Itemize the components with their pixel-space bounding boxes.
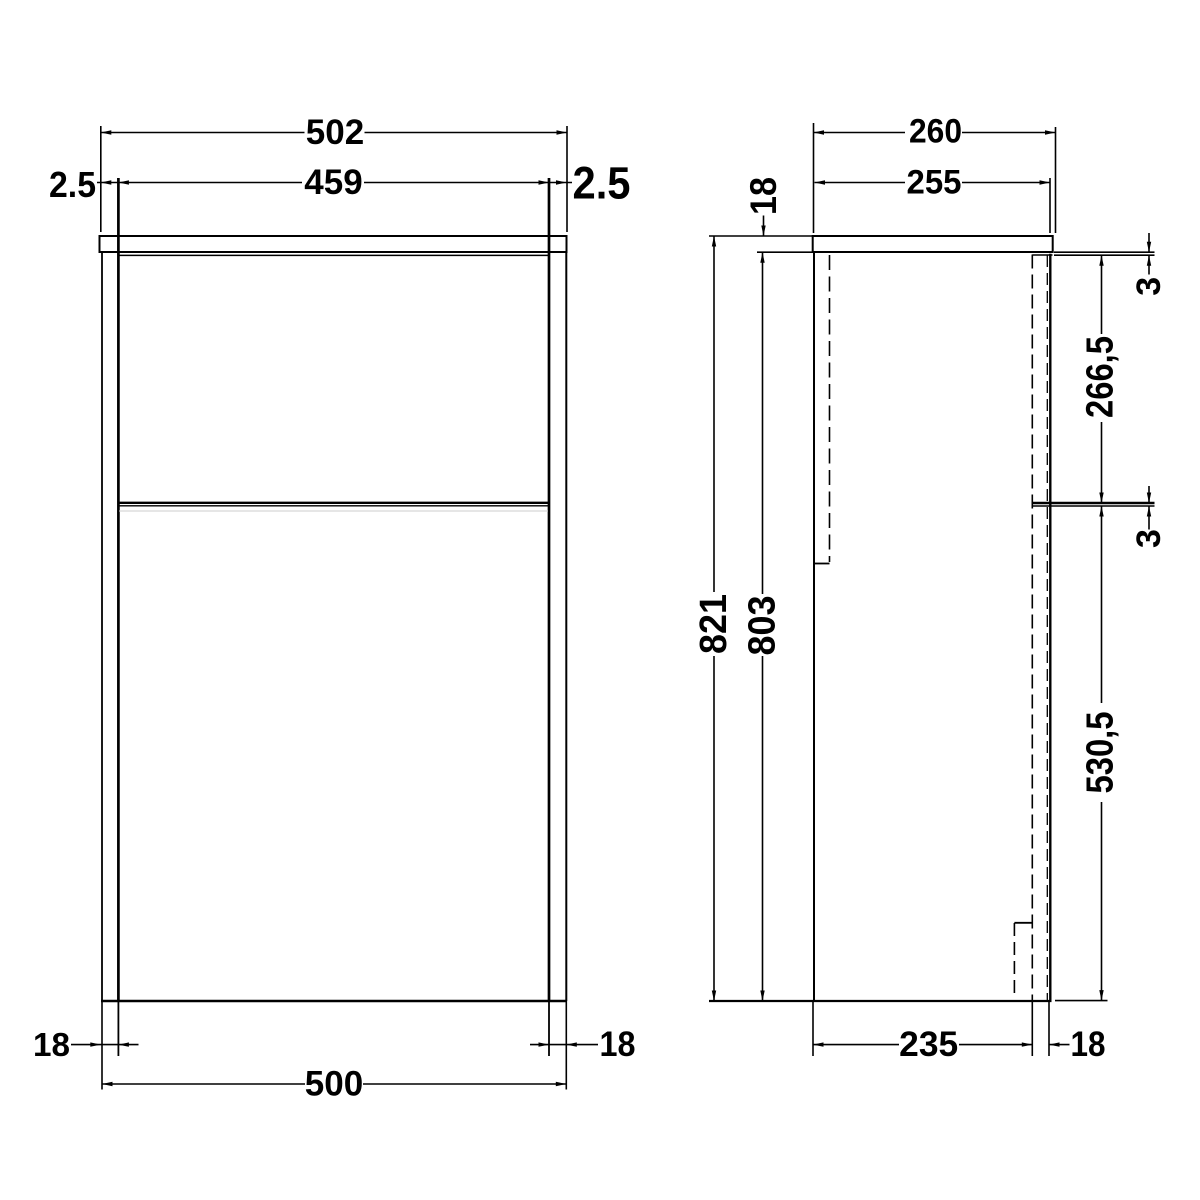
svg-text:266,5: 266,5 (1080, 336, 1122, 418)
svg-text:18: 18 (600, 1025, 636, 1064)
svg-text:500: 500 (305, 1065, 363, 1104)
svg-text:459: 459 (304, 163, 362, 202)
svg-text:260: 260 (909, 113, 962, 151)
svg-text:18: 18 (743, 177, 784, 215)
svg-text:3: 3 (1130, 277, 1168, 296)
svg-text:18: 18 (33, 1026, 70, 1063)
svg-text:2.5: 2.5 (49, 164, 96, 205)
svg-text:235: 235 (899, 1025, 958, 1064)
svg-text:821: 821 (693, 594, 735, 654)
svg-text:530,5: 530,5 (1080, 712, 1122, 794)
svg-text:18: 18 (1071, 1025, 1106, 1064)
svg-text:803: 803 (742, 596, 784, 656)
svg-text:3: 3 (1130, 529, 1168, 548)
svg-text:255: 255 (907, 163, 962, 201)
svg-text:502: 502 (306, 113, 364, 152)
svg-text:2.5: 2.5 (573, 158, 631, 209)
